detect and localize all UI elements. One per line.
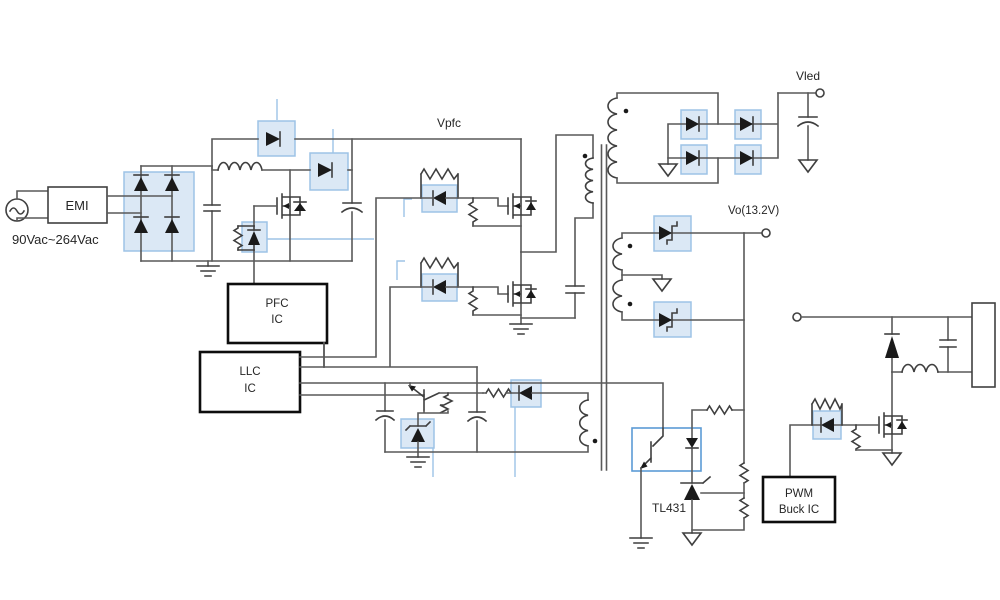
pfc-ic-label-2: IC [271,314,283,326]
resistor-icon [740,463,748,483]
resistor-icon [707,406,732,414]
bridge-rectifier-highlight [124,172,194,251]
callout-hs-gate [404,199,412,217]
tl431-label: TL431 [652,501,686,515]
led-driver-power-supply-schematic: EMI 90Vac~264Vac Vpfc [0,0,1000,600]
buck-freewheel-diode [885,317,899,372]
resistor-icon [440,393,452,413]
ac-input-range-label: 90Vac~264Vac [12,232,99,247]
feedback-divider [692,463,748,530]
ground-triangle-icon [799,160,817,172]
ground-triangle-icon [653,279,671,291]
winding-icon [586,158,594,203]
capacitor-icon [468,412,486,421]
llc-ic-label-1: LLC [239,366,260,378]
buck-load-block [972,303,995,387]
buck-stage: PWM Buck IC [763,303,995,522]
llc-high-side-mosfet [508,139,536,252]
ground-icon [630,538,652,548]
input-filter-capacitor [204,166,220,261]
vled-output: Vled [778,69,824,172]
tl431-shunt: TL431 [652,477,710,545]
polarity-dot [628,244,633,249]
emi-filter-block: EMI [48,187,107,223]
vled-terminal [816,89,824,97]
pfc-inductor [212,163,310,171]
ground-icon [407,457,429,467]
aux-diode [519,386,588,400]
half-bridge-ground [510,318,575,334]
buck-output-capacitor [940,317,956,372]
pwm-buck-label-1: PWM [785,488,813,500]
pwm-buck-label-2: Buck IC [779,504,819,516]
ground-triangle-icon [659,164,677,176]
buck-mosfet [879,372,907,465]
polarity-dot [593,439,598,444]
winding-icon [608,98,617,178]
polarity-dot [583,154,588,159]
inductor-icon [218,163,262,171]
vo-output: Vo(13.2V) [728,205,779,463]
vled-label: Vled [796,69,820,83]
optocoupler-highlight [632,428,701,471]
transformer-core [602,145,607,470]
buck-inductor [892,365,972,373]
pfc-ic-label-1: PFC [266,298,289,310]
feedback-bias-resistor [692,406,744,428]
aux-supply [324,343,597,467]
winding-icon [580,400,588,446]
vpfc-label: Vpfc [437,116,461,130]
winding-icon [613,280,622,312]
callout-ls-gate [397,261,405,280]
resonant-capacitor [566,203,593,318]
emi-label: EMI [65,198,88,213]
capacitor-icon [798,117,818,126]
ls-gate-network [421,258,521,315]
ac-source [6,191,48,221]
polarity-dot [628,302,633,307]
llc-low-side-mosfet [508,252,536,318]
vo-label: Vo(13.2V) [728,205,779,217]
schematic-canvas: EMI 90Vac~264Vac Vpfc [0,0,1000,600]
polarity-dot [624,109,629,114]
resistor-icon [234,226,242,250]
llc-ic-box: LLC IC [200,352,300,412]
pwm-buck-ic-box: PWM Buck IC [763,477,835,522]
transformer-primary [521,135,593,252]
winding-icon [613,238,622,270]
llc-ic-label-2: IC [244,383,256,395]
ground-triangle-icon [883,453,901,465]
capacitor-icon [940,340,956,347]
capacitor-icon [376,411,394,420]
inductor-icon [902,365,938,373]
hs-gate-network [421,169,521,226]
input-ground [197,261,219,276]
resistor-icon [740,498,748,518]
vo-terminal [762,229,770,237]
ground-triangle-icon [683,533,701,545]
buck-input-terminal [793,313,801,321]
